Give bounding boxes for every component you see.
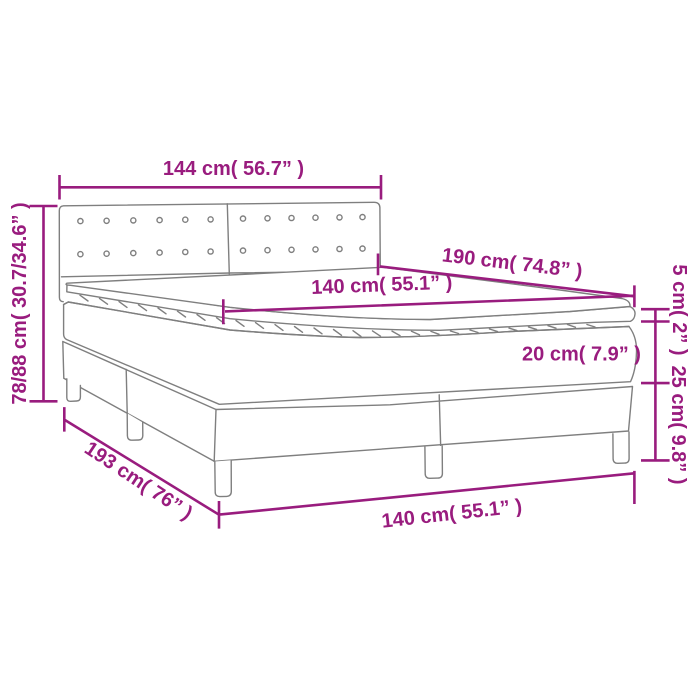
svg-text:20 cm( 7.9” ): 20 cm( 7.9” ): [522, 343, 641, 365]
svg-text:5 cm( 2” ): 5 cm( 2” ): [668, 264, 690, 355]
svg-text:144 cm( 56.7” ): 144 cm( 56.7” ): [163, 158, 304, 180]
svg-text:25 cm( 9.8” ): 25 cm( 9.8” ): [667, 366, 689, 485]
svg-text:78/88 cm( 30.7/34.6” ): 78/88 cm( 30.7/34.6” ): [9, 202, 31, 404]
